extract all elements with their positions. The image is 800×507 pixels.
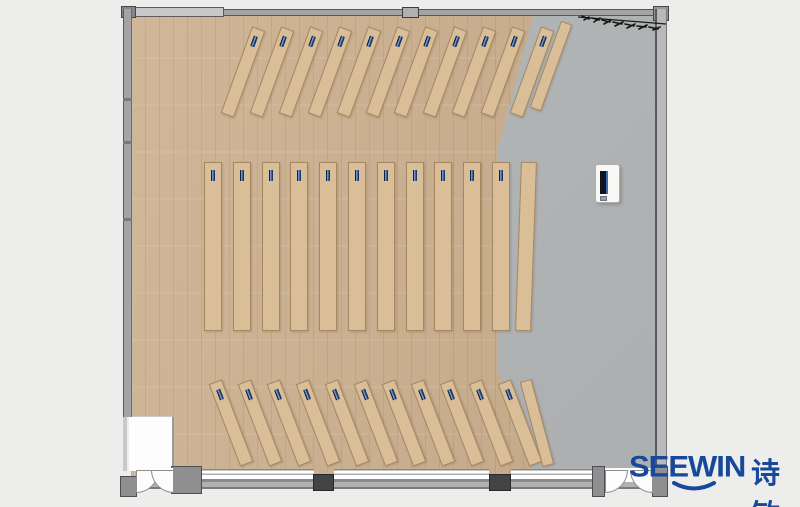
laptop-marker[interactable] — [505, 389, 513, 401]
laptop-marker[interactable] — [482, 36, 490, 48]
wall-post-bottom-left — [171, 466, 202, 494]
annotation-squiggle — [576, 13, 668, 33]
laptop-marker[interactable] — [250, 36, 258, 48]
laptop-marker[interactable] — [390, 389, 398, 401]
desk-row-middle[interactable] — [262, 162, 280, 331]
laptop-marker[interactable] — [453, 36, 461, 48]
wall-joint — [123, 218, 132, 221]
laptop-marker[interactable] — [384, 170, 388, 181]
desk-row-middle[interactable] — [290, 162, 308, 331]
desk-row-middle[interactable] — [233, 162, 251, 331]
desk-row-middle[interactable] — [406, 162, 424, 331]
corner-post-bottom-left — [120, 476, 137, 497]
pier — [489, 474, 511, 491]
brand-name-latin: SEEWIN — [629, 450, 745, 485]
laptop-marker[interactable] — [274, 389, 282, 401]
desk-row-middle[interactable] — [319, 162, 337, 331]
entry-vestibule — [129, 416, 174, 471]
laptop-marker[interactable] — [361, 389, 369, 401]
column-top-center — [402, 7, 419, 18]
podium-tray — [600, 196, 607, 201]
brand-name-cn: 诗敏 — [751, 450, 800, 507]
desk-row-middle[interactable] — [463, 162, 481, 331]
laptop-marker[interactable] — [510, 36, 518, 48]
laptop-marker[interactable] — [499, 170, 503, 181]
window-sill — [137, 481, 668, 489]
laptop-marker[interactable] — [269, 170, 273, 181]
laptop-marker[interactable] — [355, 170, 359, 181]
laptop-marker[interactable] — [303, 389, 311, 401]
laptop-marker[interactable] — [211, 170, 215, 181]
laptop-marker[interactable] — [245, 389, 253, 401]
laptop-marker[interactable] — [279, 36, 287, 48]
wall-left — [123, 9, 132, 417]
desk-row-middle[interactable] — [348, 162, 366, 331]
window-band — [200, 469, 314, 481]
podium[interactable] — [595, 164, 620, 203]
podium-screen-icon — [600, 171, 608, 194]
laptop-marker[interactable] — [337, 36, 345, 48]
laptop-marker[interactable] — [413, 170, 417, 181]
window-band — [511, 469, 594, 481]
laptop-marker[interactable] — [470, 170, 474, 181]
laptop-marker[interactable] — [395, 36, 403, 48]
wall-joint — [123, 141, 132, 144]
laptop-marker[interactable] — [308, 36, 316, 48]
laptop-marker[interactable] — [441, 170, 445, 181]
laptop-marker[interactable] — [216, 389, 224, 401]
vestibule-outer-wall — [123, 416, 127, 471]
window-band — [334, 469, 489, 481]
desk-row-middle[interactable] — [492, 162, 510, 331]
smile-icon — [671, 481, 717, 494]
laptop-marker[interactable] — [332, 389, 340, 401]
laptop-marker[interactable] — [476, 389, 484, 401]
desk-layer — [0, 0, 800, 507]
laptop-marker[interactable] — [326, 170, 330, 181]
laptop-marker[interactable] — [447, 389, 455, 401]
side-table-middle[interactable] — [515, 161, 537, 330]
laptop-marker[interactable] — [539, 36, 547, 48]
wall-right — [655, 9, 667, 482]
beam-top-left — [134, 7, 224, 17]
floor-plan-canvas: SEEWIN 诗敏 — [0, 0, 800, 507]
laptop-marker[interactable] — [366, 36, 374, 48]
desk-row-middle[interactable] — [434, 162, 452, 331]
pier — [313, 474, 334, 491]
laptop-marker[interactable] — [297, 170, 301, 181]
laptop-marker[interactable] — [240, 170, 244, 181]
brand-logo: SEEWIN 诗敏 — [627, 447, 800, 497]
laptop-marker[interactable] — [424, 36, 432, 48]
door-post-bottom-right — [592, 466, 605, 497]
desk-row-middle[interactable] — [204, 162, 222, 331]
desk-row-middle[interactable] — [377, 162, 395, 331]
wall-joint — [123, 98, 132, 101]
laptop-marker[interactable] — [419, 389, 427, 401]
